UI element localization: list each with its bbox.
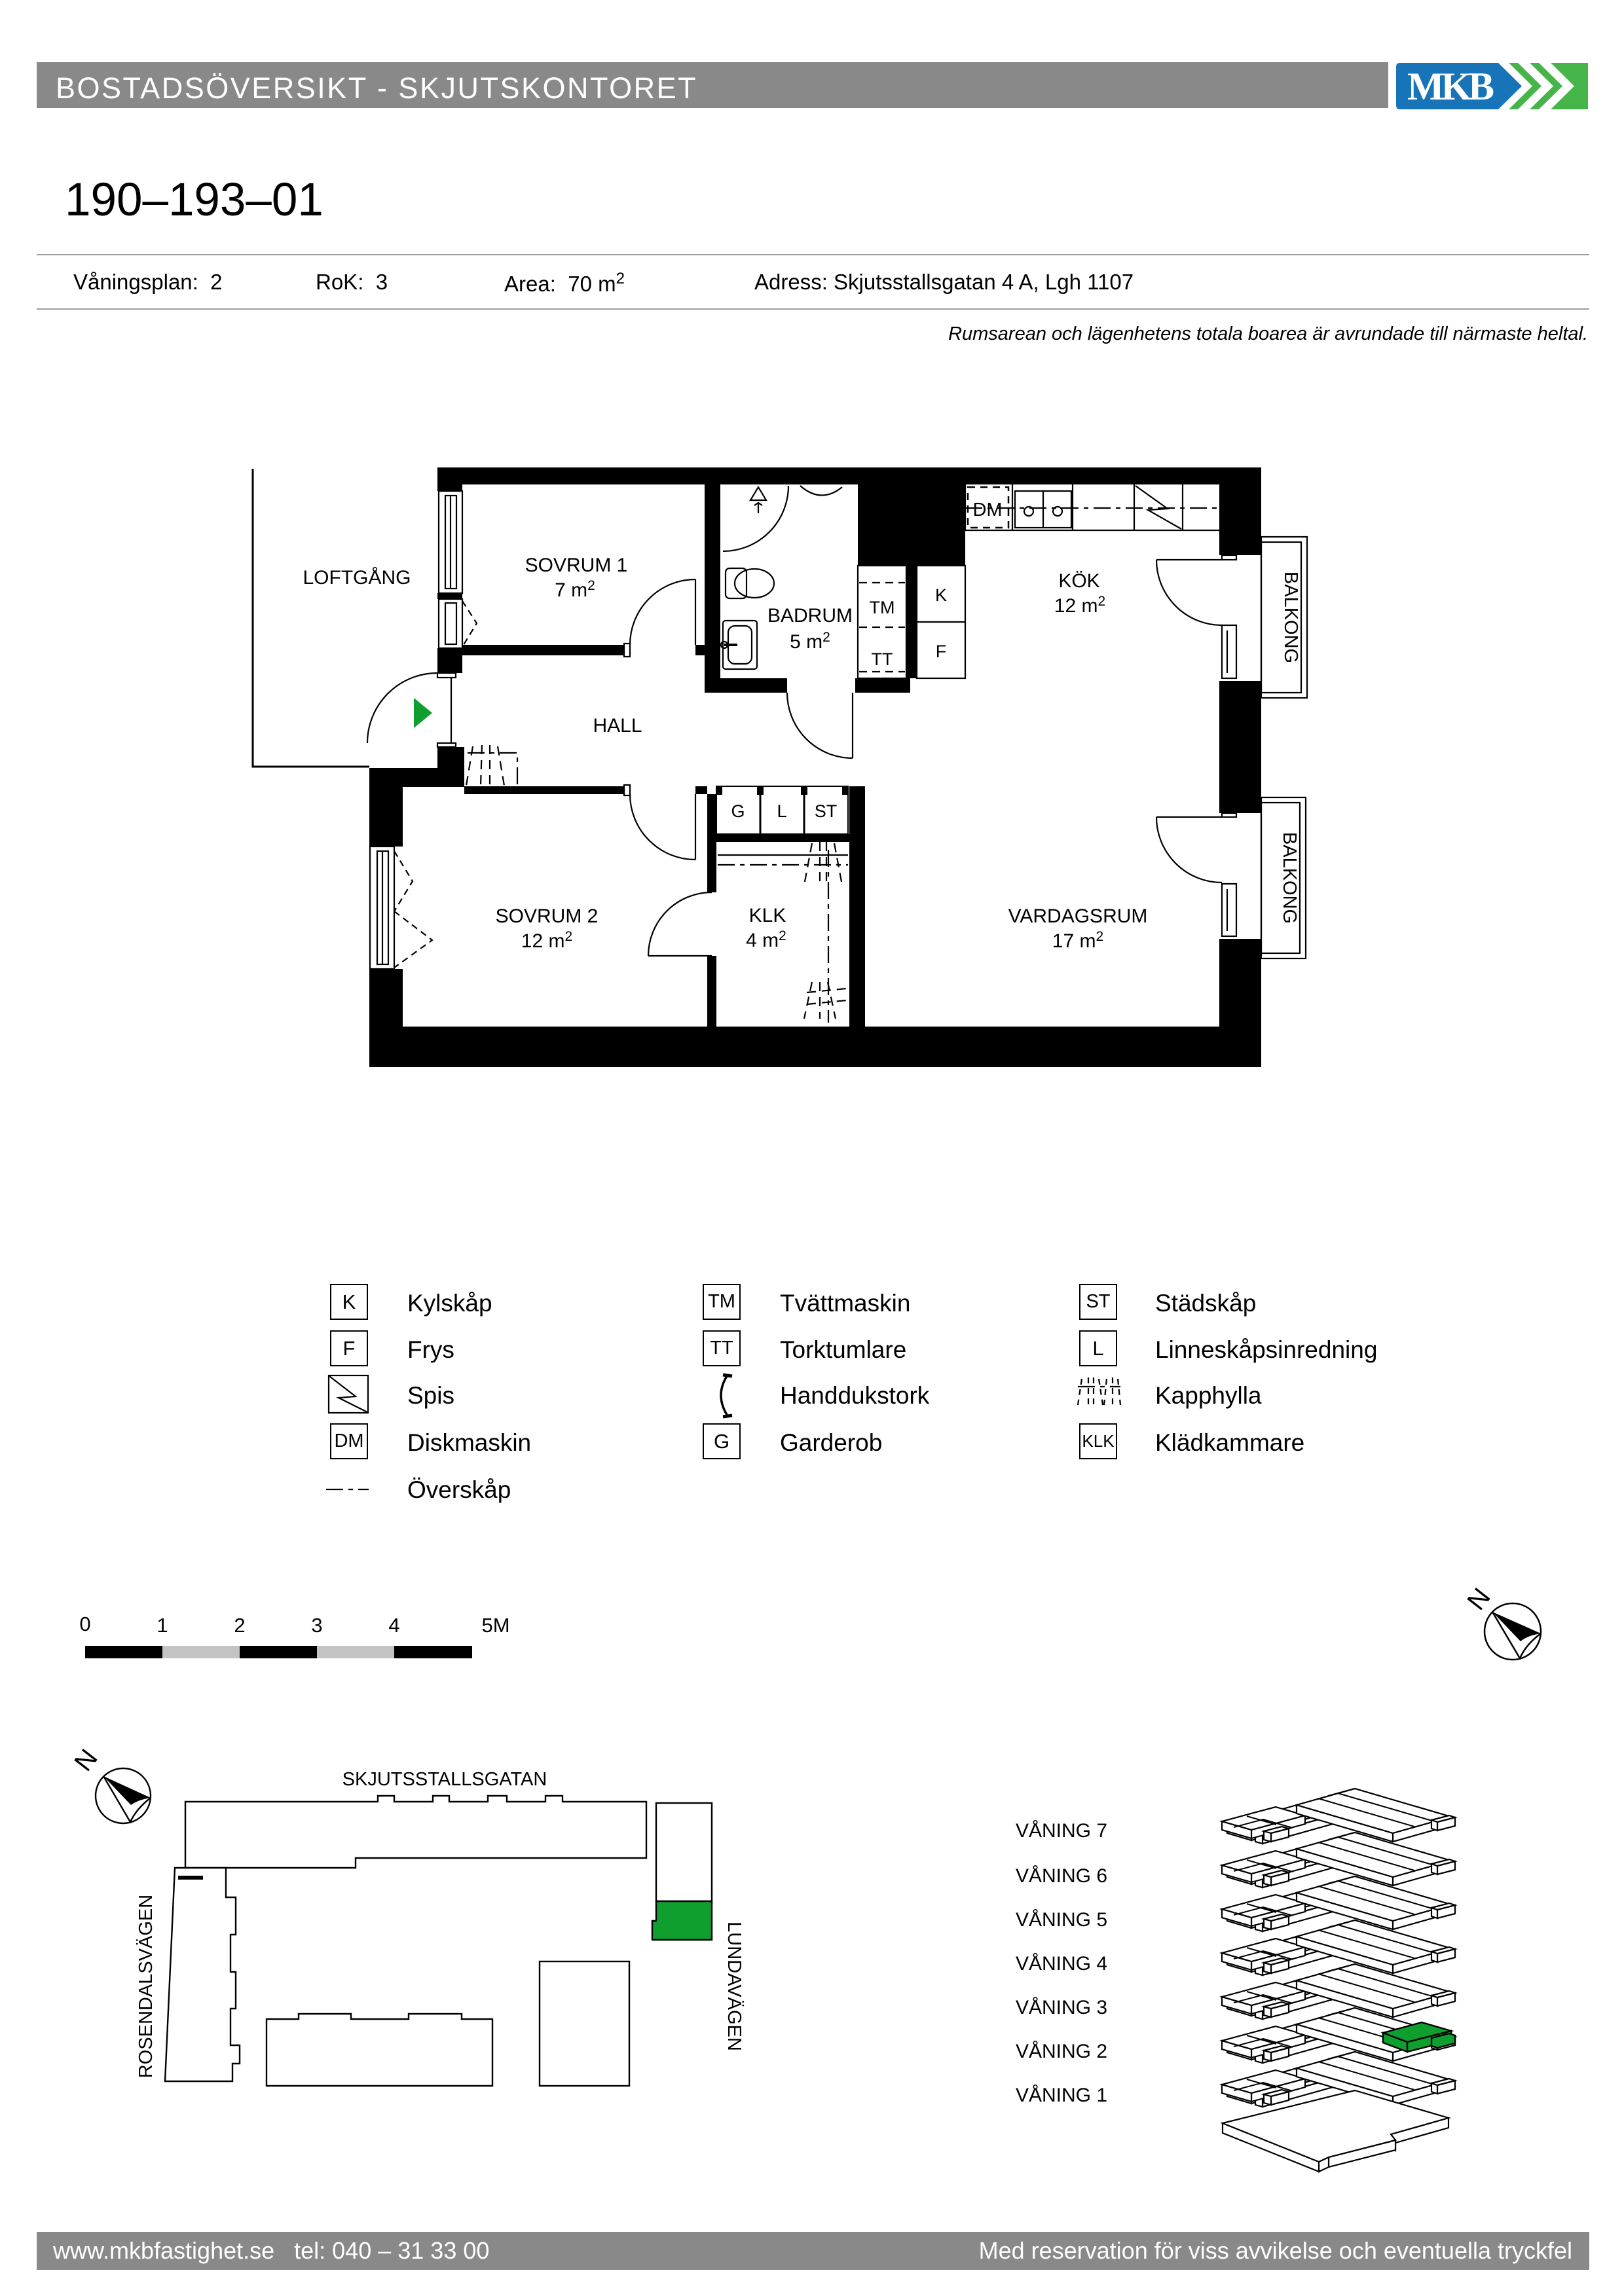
svg-text:0: 0: [79, 1613, 90, 1635]
svg-text:SOVRUM 1: SOVRUM 1: [525, 555, 628, 576]
svg-text:2: 2: [234, 1614, 245, 1637]
svg-text:N: N: [69, 1744, 103, 1777]
svg-text:SKJUTSSTALLSGATAN: SKJUTSSTALLSGATAN: [342, 1769, 547, 1790]
svg-text:ROSENDALSVÄGEN: ROSENDALSVÄGEN: [136, 1895, 157, 2078]
svg-text:5 m2: 5 m2: [790, 630, 830, 653]
svg-text:VÅNING 6: VÅNING 6: [1016, 1865, 1107, 1887]
svg-text:KÖK: KÖK: [1058, 570, 1099, 592]
svg-text:7 m2: 7 m2: [555, 578, 595, 601]
svg-text:DM: DM: [972, 500, 1002, 520]
svg-text:G: G: [731, 801, 745, 821]
svg-text:BADRUM: BADRUM: [767, 605, 853, 627]
svg-text:VÅNING 7: VÅNING 7: [1016, 1820, 1107, 1842]
svg-text:SOVRUM 2: SOVRUM 2: [496, 905, 599, 927]
svg-text:3: 3: [311, 1614, 322, 1637]
svg-text:HALL: HALL: [593, 715, 642, 737]
svg-text:VÅNING 5: VÅNING 5: [1016, 1909, 1107, 1931]
svg-text:VÅNING 4: VÅNING 4: [1016, 1953, 1107, 1975]
svg-text:LUNDAVÄGEN: LUNDAVÄGEN: [724, 1922, 745, 2051]
svg-text:KLK: KLK: [749, 905, 786, 926]
svg-text:BALKONG: BALKONG: [1279, 832, 1300, 924]
svg-text:K: K: [935, 585, 947, 605]
svg-text:ST: ST: [815, 801, 838, 821]
svg-text:5M: 5M: [481, 1614, 509, 1637]
svg-text:VARDAGSRUM: VARDAGSRUM: [1008, 905, 1148, 927]
svg-text:17 m2: 17 m2: [1052, 929, 1103, 952]
svg-text:N: N: [1462, 1583, 1496, 1616]
svg-text:12 m2: 12 m2: [1054, 594, 1105, 617]
svg-text:VÅNING 3: VÅNING 3: [1016, 1997, 1107, 2018]
svg-text:VÅNING 2: VÅNING 2: [1016, 2041, 1107, 2062]
svg-text:L: L: [777, 801, 786, 821]
svg-text:F: F: [936, 642, 947, 661]
svg-text:12 m2: 12 m2: [521, 929, 572, 952]
svg-text:VÅNING 1: VÅNING 1: [1016, 2085, 1107, 2106]
svg-text:LOFTGÅNG: LOFTGÅNG: [303, 567, 411, 589]
svg-text:4 m2: 4 m2: [746, 928, 786, 951]
svg-text:TM: TM: [870, 598, 895, 617]
svg-text:4: 4: [388, 1614, 399, 1637]
svg-text:TT: TT: [872, 649, 893, 669]
svg-text:BALKONG: BALKONG: [1280, 572, 1301, 663]
svg-text:1: 1: [157, 1614, 168, 1637]
